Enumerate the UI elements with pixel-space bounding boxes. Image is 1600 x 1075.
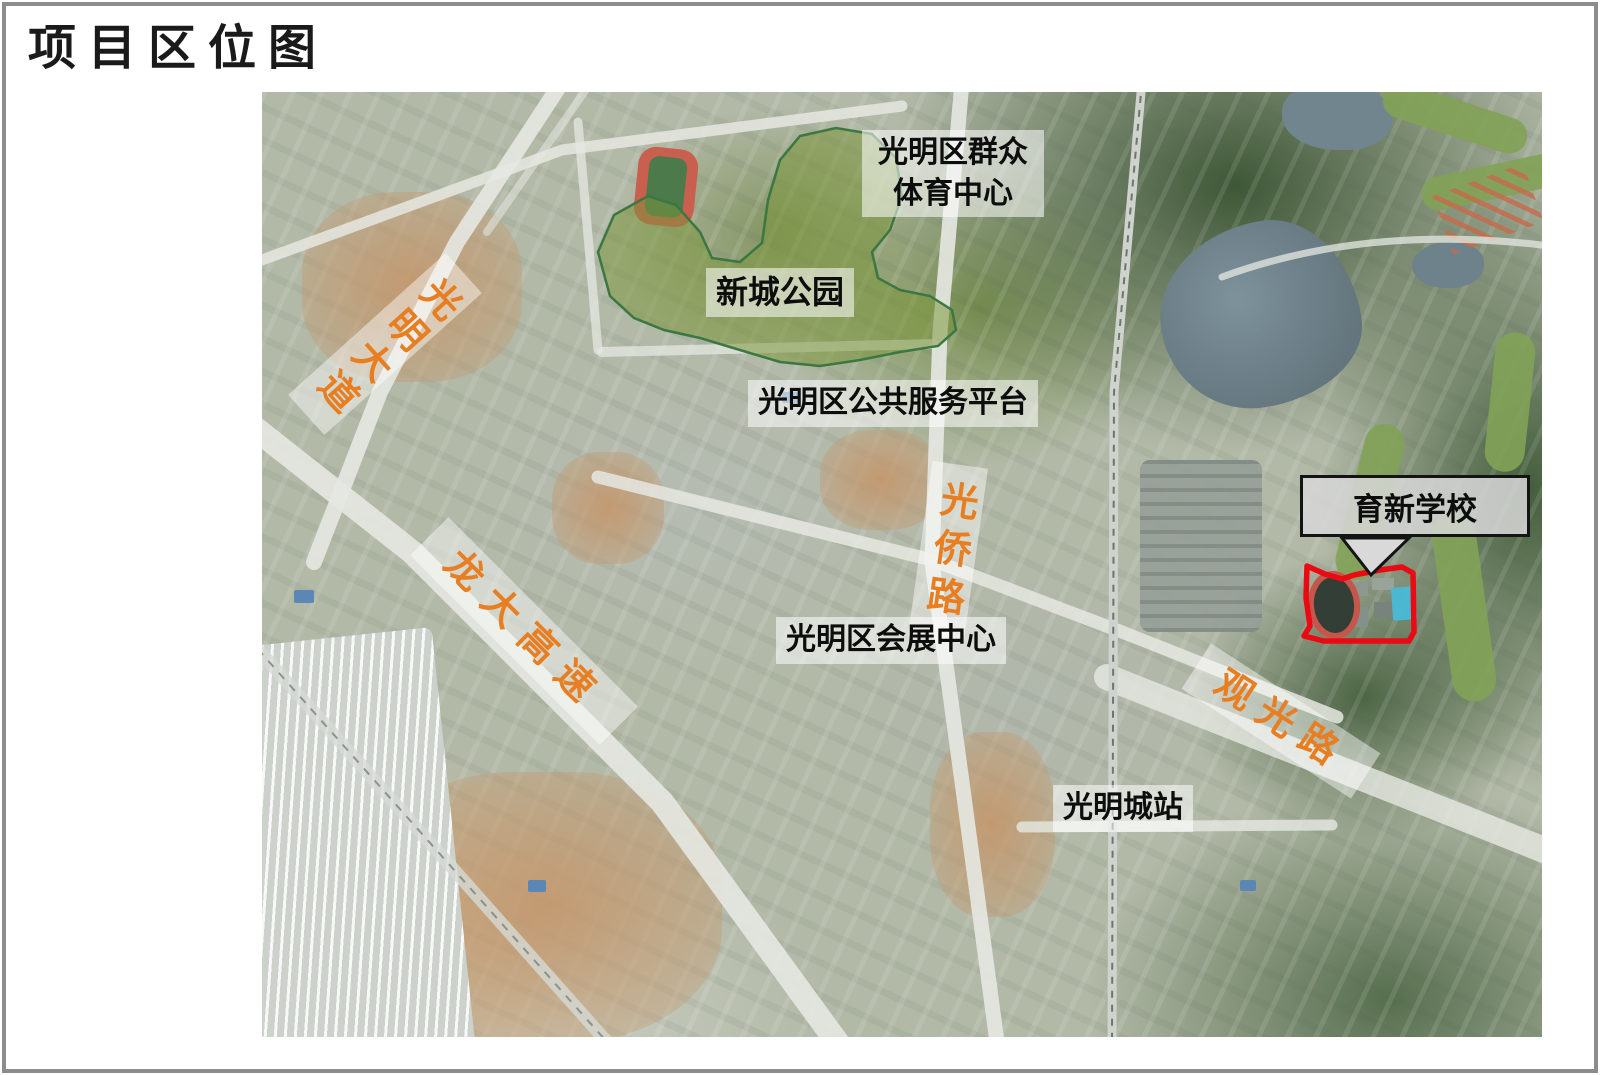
label-convention-center: 光明区会展中心: [776, 617, 1006, 664]
school-callout-box: 育新学校: [1300, 475, 1530, 537]
label-sports-center: 光明区群众体育中心: [862, 130, 1044, 217]
school-running-track: [1308, 572, 1359, 638]
label-guangmingcheng-station: 光明城站: [1053, 785, 1193, 832]
school-site-buildings: [1308, 572, 1417, 638]
building: [1374, 602, 1392, 618]
satellite-map: 光明区群众体育中心 新城公园 光明区公共服务平台 光明区会展中心 光明城站 育新…: [262, 92, 1542, 1037]
label-public-service-platform: 光明区公共服务平台: [748, 380, 1038, 427]
page-title: 项目区位图: [28, 22, 328, 75]
label-xincheng-park: 新城公园: [706, 268, 854, 317]
building: [1372, 578, 1394, 590]
school-callout-label: 育新学校: [1353, 484, 1477, 529]
slide: 项目区位图: [0, 0, 1600, 1075]
